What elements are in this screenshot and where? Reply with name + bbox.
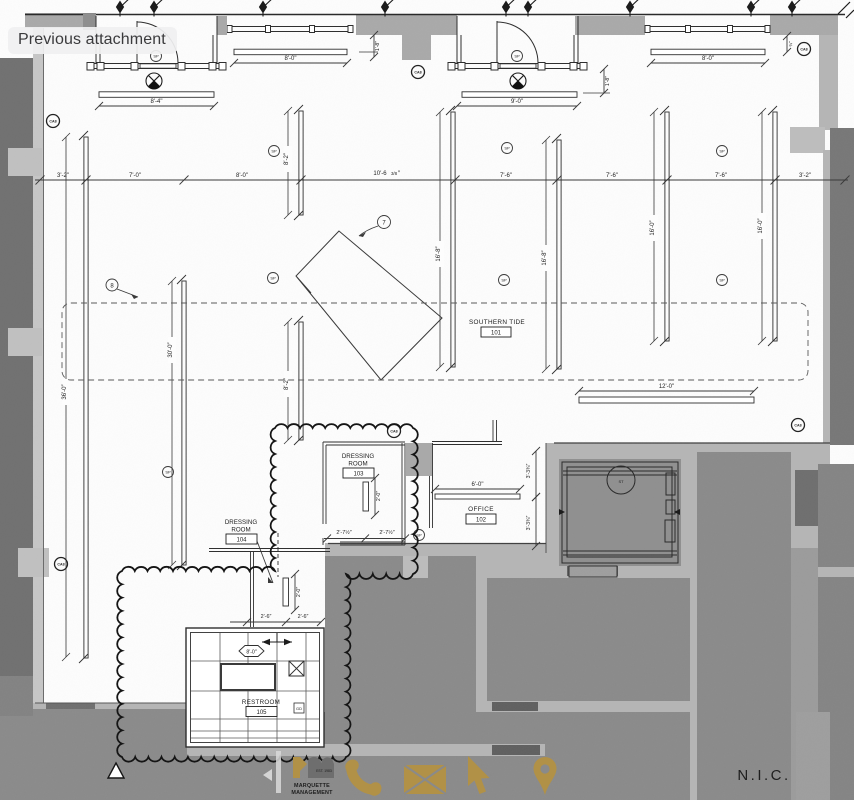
svg-text:2′-7½″: 2′-7½″ (336, 529, 351, 536)
svg-text:101: 101 (491, 331, 502, 337)
svg-text:8'-0": 8'-0" (702, 56, 714, 62)
svg-text:6'-0": 6'-0" (472, 482, 484, 488)
svg-text:ROOM: ROOM (231, 527, 250, 534)
svg-text:2′-7½″: 2′-7½″ (379, 529, 394, 536)
svg-text:OFFICE: OFFICE (468, 506, 494, 513)
svg-text:SP: SP (270, 276, 276, 281)
svg-text:SP: SP (153, 54, 159, 59)
svg-text:¾": ¾" (788, 41, 793, 47)
svg-text:SP: SP (501, 278, 507, 283)
svg-text:N.I.C.: N.I.C. (737, 767, 790, 784)
svg-text:ROOM: ROOM (348, 461, 367, 468)
svg-text:CA8: CA8 (57, 563, 64, 567)
svg-text:3′-3¾″: 3′-3¾″ (526, 516, 532, 531)
svg-text:CA8: CA8 (794, 424, 801, 428)
svg-text:CA8: CA8 (49, 120, 56, 124)
svg-text:7'-0": 7'-0" (129, 173, 141, 179)
svg-text:ST: ST (618, 479, 624, 484)
svg-text:9'-0": 9'-0" (511, 99, 523, 105)
svg-text:16′-0″: 16′-0″ (758, 217, 764, 233)
svg-text:RESTROOM: RESTROOM (242, 699, 280, 706)
svg-text:102: 102 (476, 518, 487, 524)
svg-text:8′-0″: 8′-0″ (246, 650, 256, 656)
svg-text:8'-0": 8'-0" (285, 56, 297, 62)
svg-text:2′-6″: 2′-6″ (298, 614, 309, 620)
svg-text:SP: SP (165, 470, 171, 475)
svg-text:3′-3¾″: 3′-3¾″ (526, 464, 532, 479)
svg-text:7'-6": 7'-6" (715, 173, 727, 179)
svg-text:2′-0″: 2′-0″ (296, 587, 302, 597)
svg-text:CA8: CA8 (390, 430, 397, 434)
svg-text:DRESSING: DRESSING (225, 519, 258, 526)
svg-text:36′-0″: 36′-0″ (62, 383, 68, 399)
svg-text:8'-0": 8'-0" (236, 173, 248, 179)
svg-text:CA8: CA8 (414, 71, 421, 75)
svg-text:1'-8": 1'-8" (375, 41, 381, 51)
svg-text:16′-8″: 16′-8″ (542, 249, 548, 265)
svg-text:8′-2″: 8′-2″ (284, 377, 290, 390)
svg-text:3/8: 3/8 (391, 171, 398, 176)
svg-text:105: 105 (256, 710, 267, 716)
svg-text:1'-8": 1'-8" (605, 76, 611, 86)
svg-text:7'-6": 7'-6" (606, 173, 618, 179)
svg-text:SP: SP (719, 149, 725, 154)
svg-text:3'-2": 3'-2" (57, 173, 69, 179)
svg-text:DRESSING: DRESSING (342, 453, 375, 460)
svg-text:7'-6": 7'-6" (500, 173, 512, 179)
svg-text:CA8: CA8 (800, 48, 807, 52)
svg-text:SOUTHERN TIDE: SOUTHERN TIDE (469, 319, 525, 326)
svg-text:30′-0″: 30′-0″ (168, 341, 174, 357)
svg-text:12'-0": 12'-0" (659, 384, 674, 390)
svg-text:SP: SP (271, 149, 277, 154)
svg-text:8'-4": 8'-4" (151, 99, 163, 105)
svg-text:2′-0″: 2′-0″ (376, 491, 382, 501)
svg-text:8′-2″: 8′-2″ (284, 152, 290, 165)
svg-text:103: 103 (353, 472, 364, 478)
svg-text:2′-6″: 2′-6″ (261, 614, 272, 620)
svg-text:104: 104 (236, 538, 247, 544)
svg-text:10′-6: 10′-6 (373, 171, 387, 177)
svg-text:GD: GD (296, 706, 302, 711)
svg-text:3'-2": 3'-2" (799, 173, 811, 179)
svg-text:MANAGEMENT: MANAGEMENT (291, 790, 333, 796)
svg-text:16′-0″: 16′-0″ (650, 219, 656, 235)
svg-text:MARQUETTE: MARQUETTE (294, 783, 330, 789)
svg-text:EST. 1983: EST. 1983 (316, 769, 332, 773)
svg-text:16′-8″: 16′-8″ (436, 245, 442, 261)
svg-text:SP: SP (504, 146, 510, 151)
svg-text:SP: SP (719, 278, 725, 283)
svg-text:SP: SP (514, 54, 520, 59)
